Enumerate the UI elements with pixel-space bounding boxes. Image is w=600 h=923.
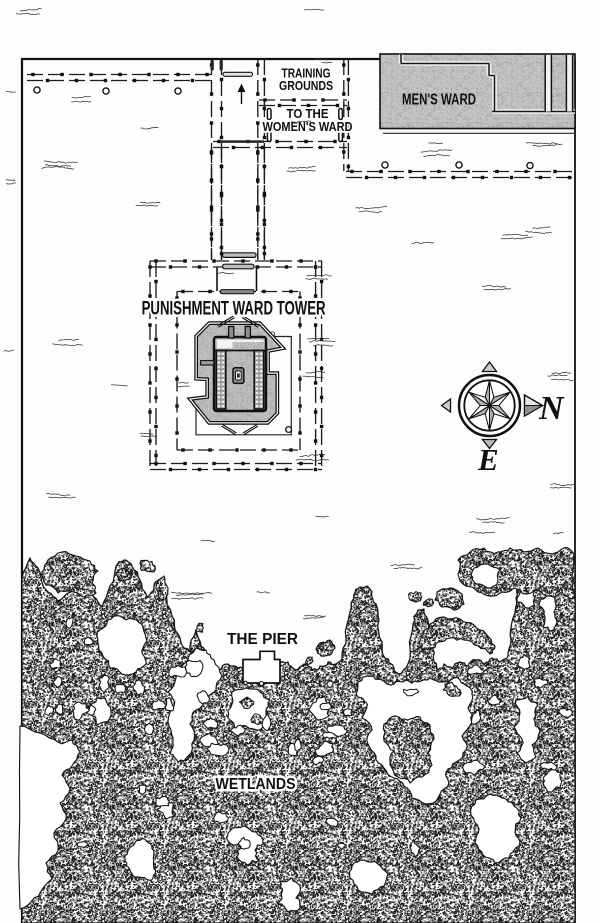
svg-text:PUNISHMENT WARD TOWER: PUNISHMENT WARD TOWER: [142, 299, 326, 320]
svg-text:MEN'S WARD: MEN'S WARD: [402, 92, 476, 109]
svg-text:GROUNDS: GROUNDS: [279, 78, 333, 93]
svg-text:WETLANDS: WETLANDS: [216, 776, 296, 793]
svg-text:N: N: [538, 390, 565, 427]
svg-text:E: E: [477, 442, 499, 477]
svg-text:THE PIER: THE PIER: [227, 631, 298, 648]
